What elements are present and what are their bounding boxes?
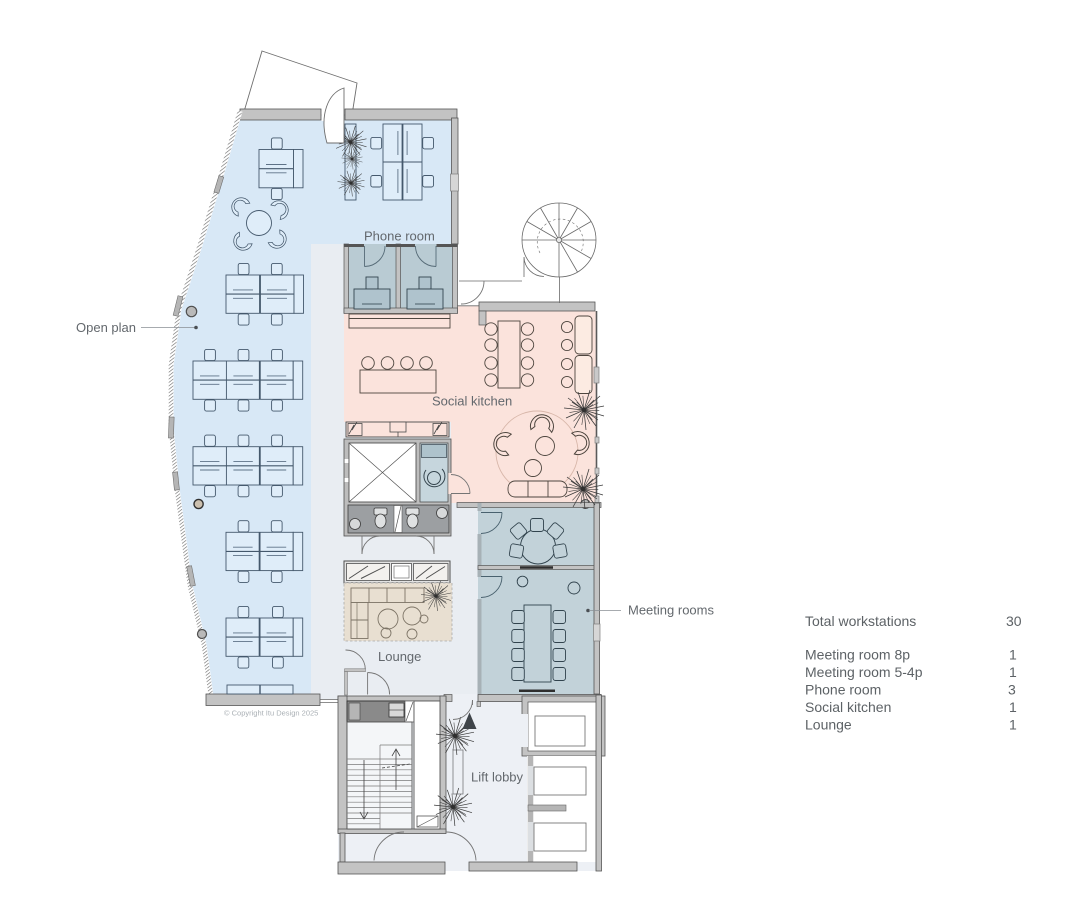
svg-text:Social kitchen: Social kitchen: [805, 699, 891, 715]
svg-text:Lounge: Lounge: [805, 717, 852, 733]
svg-text:Total workstations: Total workstations: [805, 613, 916, 629]
svg-text:Meeting room 8p: Meeting room 8p: [805, 647, 910, 663]
svg-text:1: 1: [1009, 699, 1017, 715]
svg-text:1: 1: [1009, 647, 1017, 663]
svg-text:Open plan: Open plan: [76, 320, 136, 335]
svg-text:Social kitchen: Social kitchen: [432, 394, 512, 409]
svg-text:1: 1: [1009, 717, 1017, 733]
svg-text:Phone room: Phone room: [364, 229, 435, 244]
svg-text:Lounge: Lounge: [378, 649, 421, 664]
svg-text:Meeting room 5-4p: Meeting room 5-4p: [805, 664, 923, 680]
svg-text:Meeting rooms: Meeting rooms: [628, 603, 714, 618]
svg-text:30: 30: [1006, 613, 1022, 629]
svg-text:Phone room: Phone room: [805, 682, 881, 698]
svg-text:1: 1: [1009, 664, 1017, 680]
svg-text:© Copyright Itu Design 2025: © Copyright Itu Design 2025: [224, 709, 318, 718]
svg-text:Lift lobby: Lift lobby: [471, 770, 524, 785]
svg-text:3: 3: [1008, 682, 1016, 698]
